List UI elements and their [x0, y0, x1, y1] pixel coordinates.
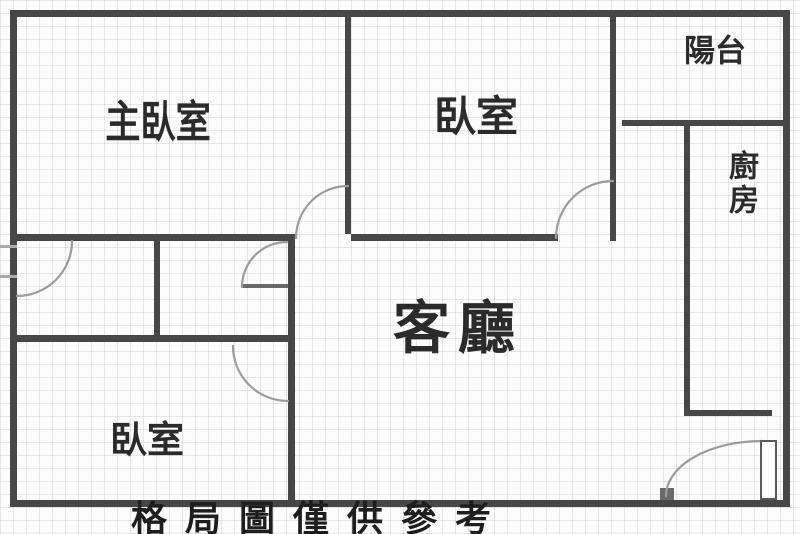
door-arc-entrance — [666, 441, 762, 496]
room-label-master-bedroom: 主臥室 — [105, 101, 211, 145]
door-arc-small-room-left — [17, 241, 72, 296]
room-label-kitchen: 廚房 — [725, 150, 755, 218]
door-arc-bedroom-bottom — [233, 346, 288, 401]
door-arc-master-bedroom — [296, 186, 348, 238]
room-label-living-room: 客廳 — [393, 301, 523, 358]
entrance-door-leaf — [761, 441, 776, 499]
room-label-bedroom-bottom: 臥室 — [110, 422, 184, 459]
door-arc-bedroom-top — [556, 181, 613, 238]
room-label-bedroom-top: 臥室 — [434, 96, 518, 138]
door-arc-small-room-right — [242, 242, 287, 287]
floor-plan: 主臥室 臥室 陽台 廚房 客廳 臥室 格局圖僅供參考 — [0, 0, 800, 534]
room-label-balcony: 陽台 — [684, 36, 746, 67]
caption: 格局圖僅供參考 — [131, 501, 509, 534]
